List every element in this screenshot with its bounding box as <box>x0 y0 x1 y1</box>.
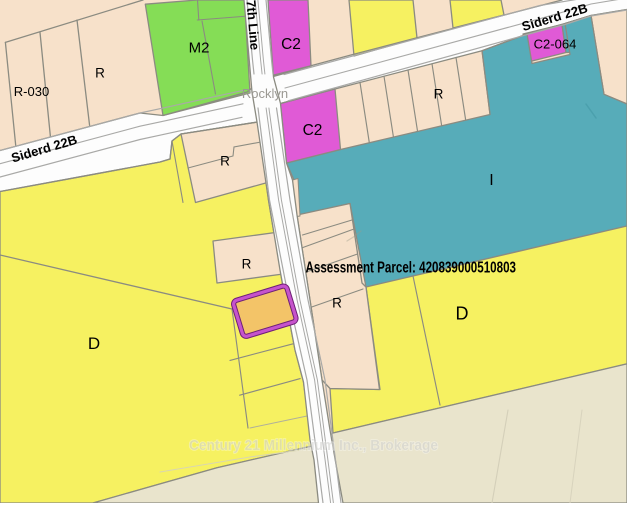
svg-text:R: R <box>434 87 444 102</box>
svg-text:D: D <box>88 334 100 353</box>
svg-text:R: R <box>332 296 342 311</box>
svg-text:R: R <box>220 154 230 169</box>
svg-text:Assessment Parcel: 42083900051: Assessment Parcel: 420839000510803 <box>306 260 517 277</box>
svg-text:D: D <box>456 304 469 324</box>
svg-text:C2: C2 <box>303 122 323 139</box>
svg-text:Century 21 Millennium Inc., Br: Century 21 Millennium Inc., Brokerage <box>189 438 438 454</box>
svg-text:Rocklyn: Rocklyn <box>242 86 288 101</box>
svg-text:R-030: R-030 <box>14 84 49 99</box>
svg-text:C2: C2 <box>281 36 301 53</box>
svg-text:R: R <box>95 66 105 81</box>
svg-text:I: I <box>489 172 493 189</box>
svg-text:M2: M2 <box>189 40 210 57</box>
svg-text:C2-064: C2-064 <box>534 37 577 52</box>
svg-text:R: R <box>242 257 252 272</box>
